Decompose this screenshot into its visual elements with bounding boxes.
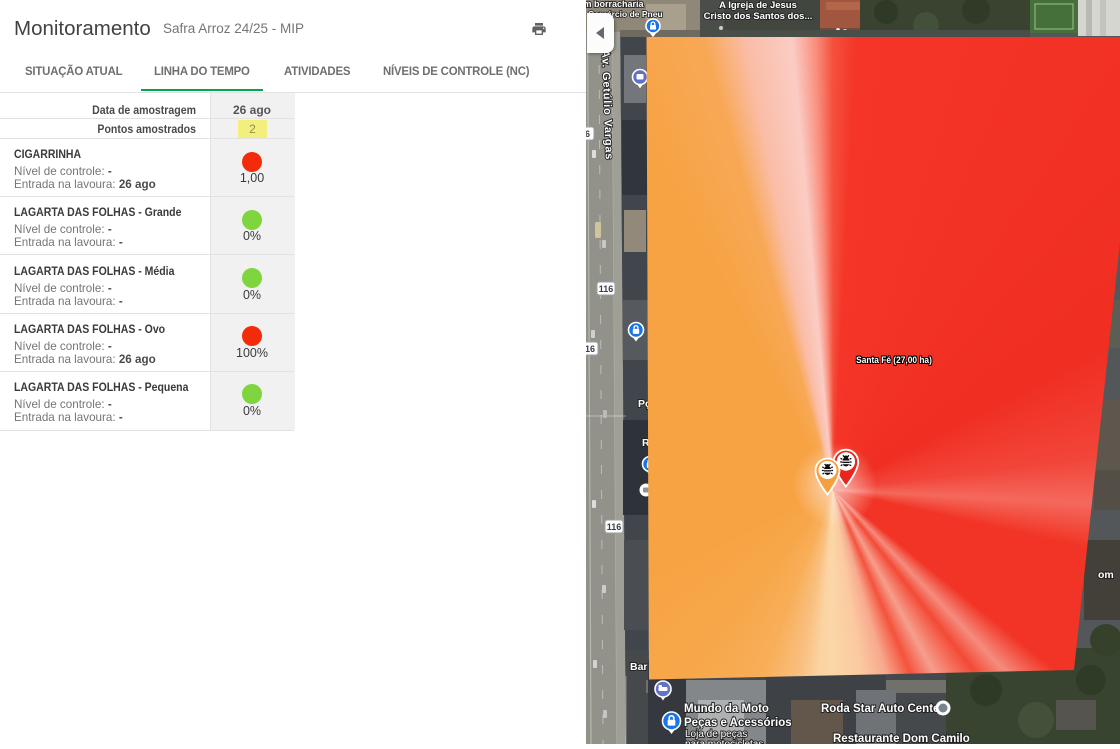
svg-text:A Igreja de Jesus: A Igreja de Jesus	[719, 0, 797, 11]
svg-text:Mundo da Moto: Mundo da Moto	[684, 703, 769, 715]
svg-text:Roda Star Auto Center: Roda Star Auto Center	[821, 703, 944, 715]
svg-text:Cristo dos Santos dos...: Cristo dos Santos dos...	[704, 11, 813, 22]
svg-text:116: 116	[599, 284, 614, 294]
svg-text:Peças e Acessórios: Peças e Acessórios	[684, 717, 792, 729]
svg-text:om: om	[1098, 569, 1114, 581]
svg-text:Bar: Bar	[630, 661, 648, 673]
svg-text:para motocicletas: para motocicletas	[685, 739, 763, 744]
svg-text:6: 6	[586, 129, 590, 139]
svg-text:Restaurante Dom Camilo: Restaurante Dom Camilo	[833, 733, 970, 744]
svg-text:16: 16	[586, 344, 595, 354]
svg-text:116: 116	[607, 522, 622, 532]
svg-text:Fm borracharia: Fm borracharia	[586, 0, 645, 9]
